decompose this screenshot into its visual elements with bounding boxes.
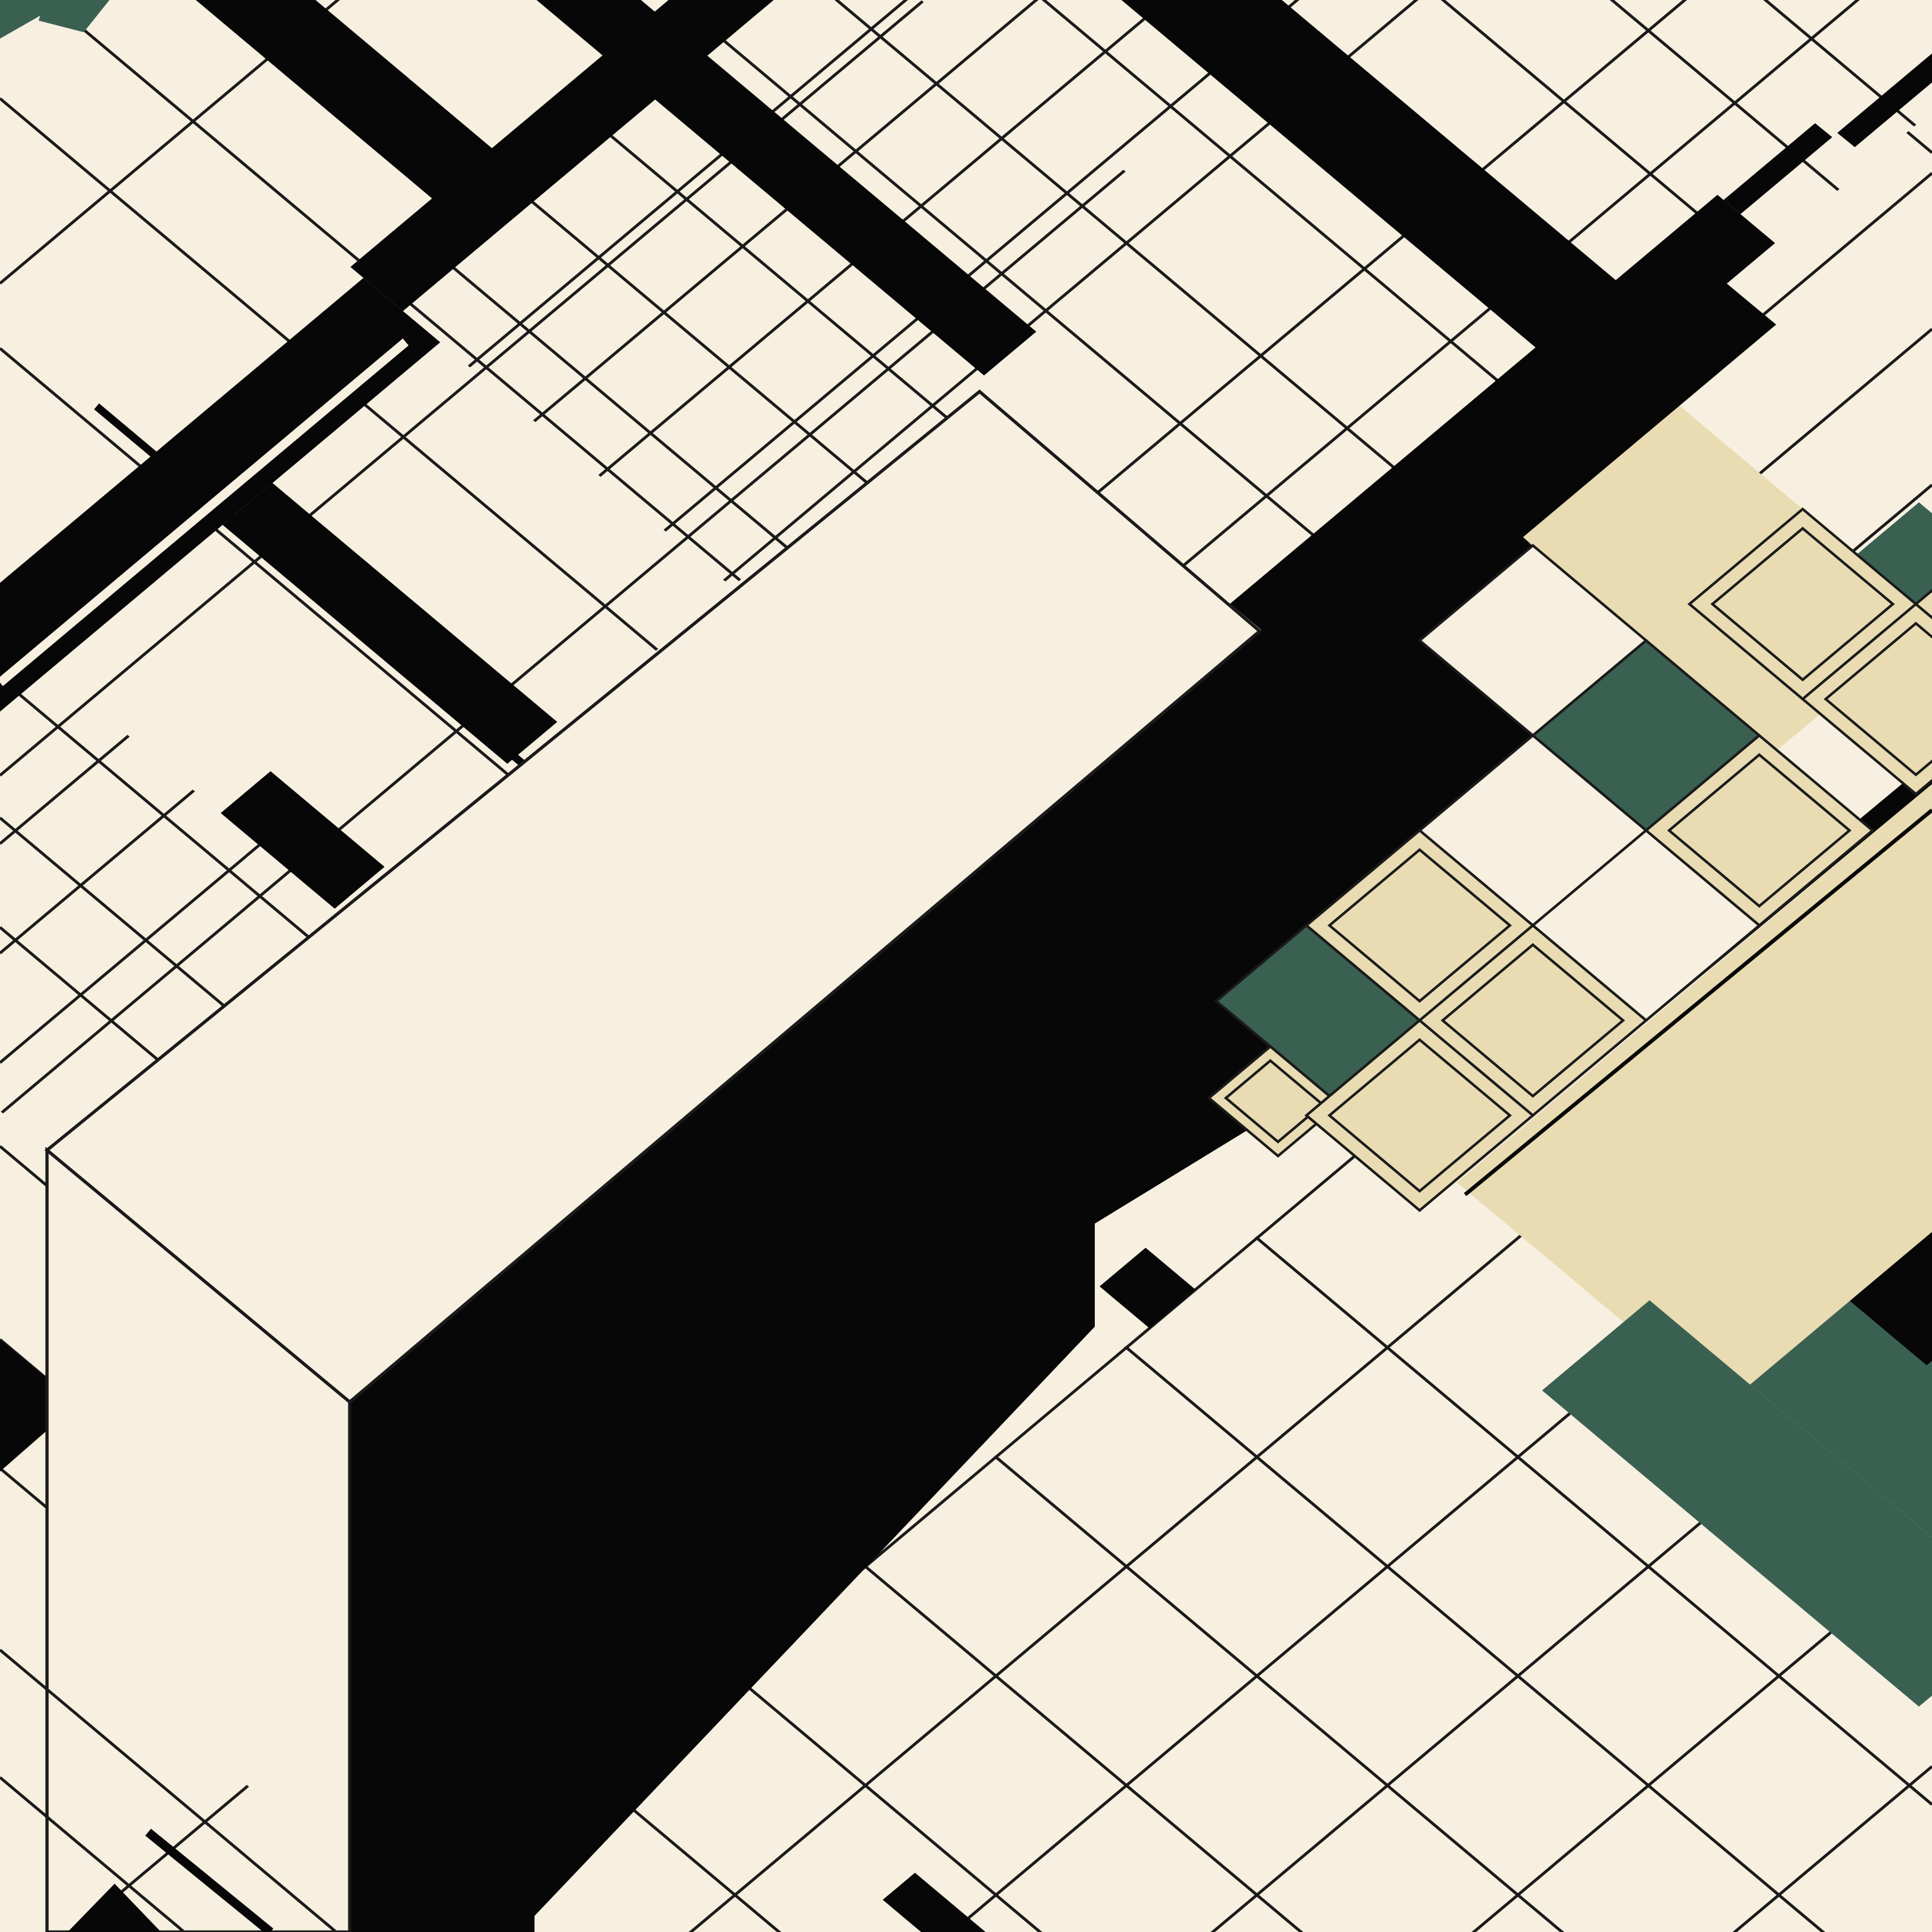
abstract-isometric-art-canvas [0, 0, 1932, 1932]
